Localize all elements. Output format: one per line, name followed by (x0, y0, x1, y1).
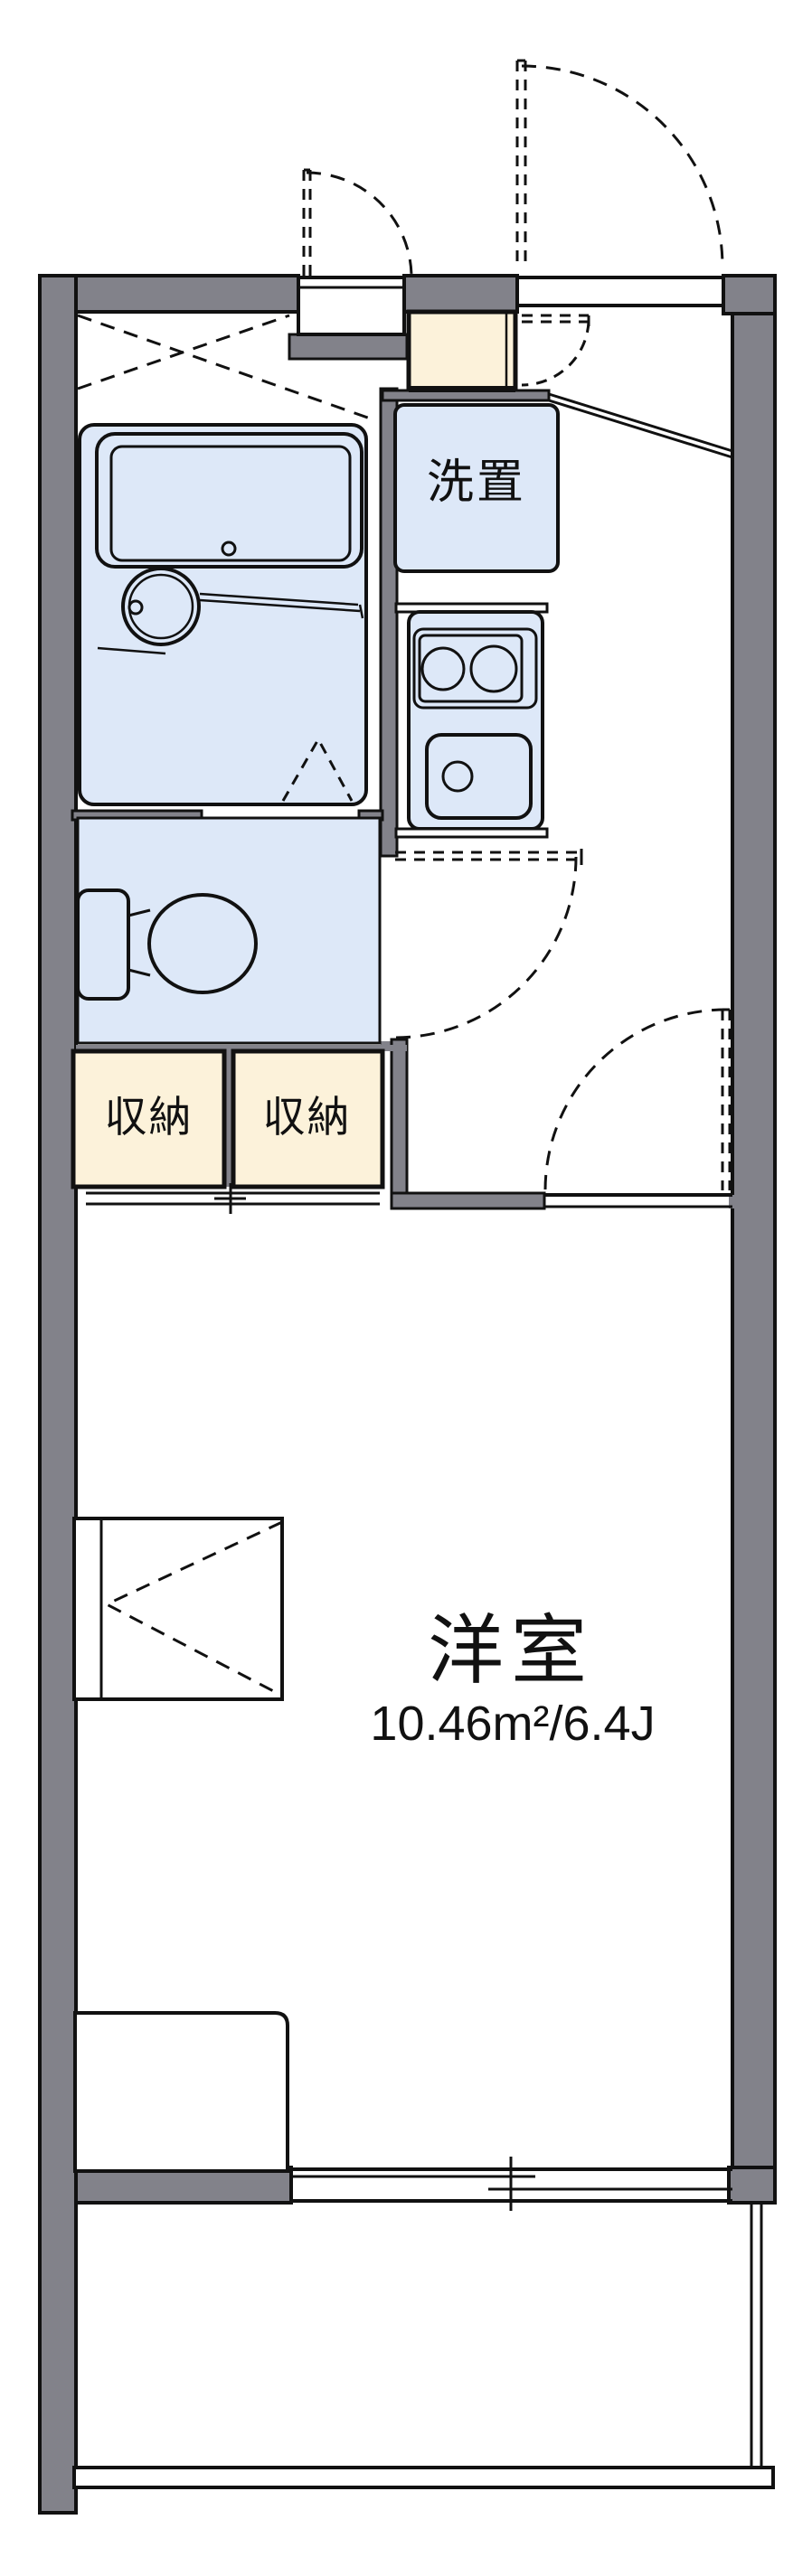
wall-top-mid (404, 276, 517, 312)
pipe-space-door-leaf (304, 170, 310, 277)
wall-top-right-corner (723, 276, 775, 314)
room-door-arc (545, 1010, 726, 1190)
floor-plan-drawing (0, 0, 812, 2576)
front-door (517, 61, 722, 267)
storage-right-label: 収納 (231, 1095, 382, 1138)
low-counter-fixture (75, 2013, 288, 2171)
main-room (74, 1518, 288, 2171)
wall-hallway-room (392, 1193, 544, 1208)
toilet-room (78, 818, 581, 1043)
front-door-arc (522, 66, 722, 267)
toilet-tank (78, 890, 128, 999)
wall-right-bottom (729, 2167, 775, 2203)
room-door-leaf (722, 1010, 730, 1190)
wall-right (732, 314, 775, 2167)
storage-left-label: 収納 (73, 1095, 224, 1138)
bay-window-desk (74, 1518, 282, 1699)
front-door-leaf (517, 61, 525, 267)
toilet-door (395, 849, 581, 1038)
bathtub (97, 434, 362, 567)
room-name-label: 洋室 (330, 1612, 692, 1688)
pipe-space-box (298, 277, 404, 334)
room-size-label: 10.46m²/6.4J (332, 1699, 694, 1748)
toilet-door-arc (395, 857, 576, 1038)
balcony (74, 2157, 773, 2487)
wall-divider-hall (392, 1039, 407, 1208)
wall-top-left (76, 276, 298, 312)
washer-area-label: 洗置 (395, 459, 558, 506)
entry-inner-door (522, 315, 589, 385)
balcony-rail-right (751, 2205, 761, 2468)
wall-under-pipe-space (289, 334, 407, 359)
toilet-door-leaf (395, 852, 581, 860)
kitchen (396, 604, 547, 837)
kitchen-counter-bottom-bar (396, 829, 547, 837)
genkan-bottom-bar (409, 386, 515, 392)
entry-inner-door-arc (522, 322, 589, 385)
genkan-step (409, 312, 515, 389)
entry-inner-door-leaf (522, 315, 589, 328)
room-door (545, 1010, 730, 1190)
pipe-space-door (304, 170, 411, 277)
wall-left (40, 276, 76, 2513)
washbasin (123, 569, 199, 644)
pipe-space-door-arc (307, 173, 411, 276)
toilet-bowl (149, 895, 256, 992)
entry-step-diagonal (549, 394, 732, 457)
bathroom (78, 315, 375, 804)
floor-plan: 洗置 収納 収納 洋室 10.46m²/6.4J (0, 0, 812, 2576)
balcony-rail-bottom (74, 2468, 773, 2487)
